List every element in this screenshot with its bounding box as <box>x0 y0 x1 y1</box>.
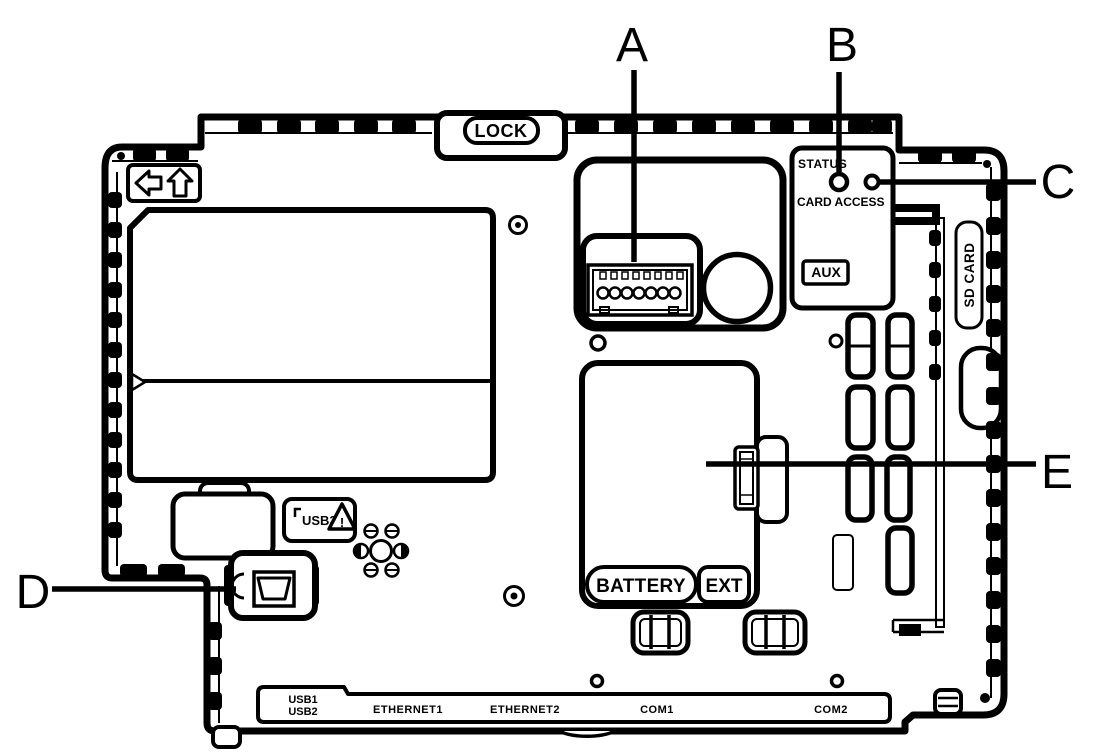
usb-cover <box>173 483 273 558</box>
callout-b: B <box>826 19 858 72</box>
com1-label: COM1 <box>640 704 674 716</box>
rear-cover-panel <box>130 210 493 480</box>
terminal-pins <box>598 288 681 299</box>
warning-exclamation: ! <box>340 515 344 530</box>
callout-c: C <box>1041 156 1076 209</box>
usb2-label: USB2 <box>288 706 317 718</box>
sd-card-label: SD CARD <box>962 242 977 307</box>
ethernet2-label: ETHERNET2 <box>490 704 560 716</box>
battery-cover: BATTERY EXT <box>582 363 787 606</box>
battery-cover-latch <box>757 437 787 522</box>
lock-label: LOCK <box>475 121 528 141</box>
diagram-canvas: LOCK STATUS CARD ACCESS AUX <box>0 0 1098 756</box>
power-connector-assembly <box>577 160 783 328</box>
orientation-arrows <box>128 165 200 201</box>
aux-label: AUX <box>811 264 841 280</box>
ethernet1-label: ETHERNET1 <box>373 704 443 716</box>
com2-label: COM2 <box>814 704 848 716</box>
callout-d: D <box>16 566 51 619</box>
card-access-label: CARD ACCESS <box>797 195 885 209</box>
ext-label: EXT <box>706 576 743 597</box>
usb3-label-box: USB3 ! <box>284 499 355 541</box>
lock-tab: LOCK <box>437 113 565 158</box>
card-access-led <box>866 176 879 189</box>
hole <box>591 336 605 350</box>
callout-e: E <box>1041 446 1073 499</box>
buzzer-circle <box>704 255 771 322</box>
status-panel: STATUS CARD ACCESS AUX <box>792 148 893 308</box>
service-usb-port <box>226 553 317 618</box>
callout-a: A <box>616 19 648 72</box>
status-led <box>831 174 847 190</box>
port-label-strip: USB1 USB2 ETHERNET1 ETHERNET2 COM1 COM2 <box>258 687 890 722</box>
device-rear-diagram: LOCK STATUS CARD ACCESS AUX <box>0 0 1098 756</box>
battery-label: BATTERY <box>596 576 686 597</box>
usb1-label: USB1 <box>288 694 317 706</box>
